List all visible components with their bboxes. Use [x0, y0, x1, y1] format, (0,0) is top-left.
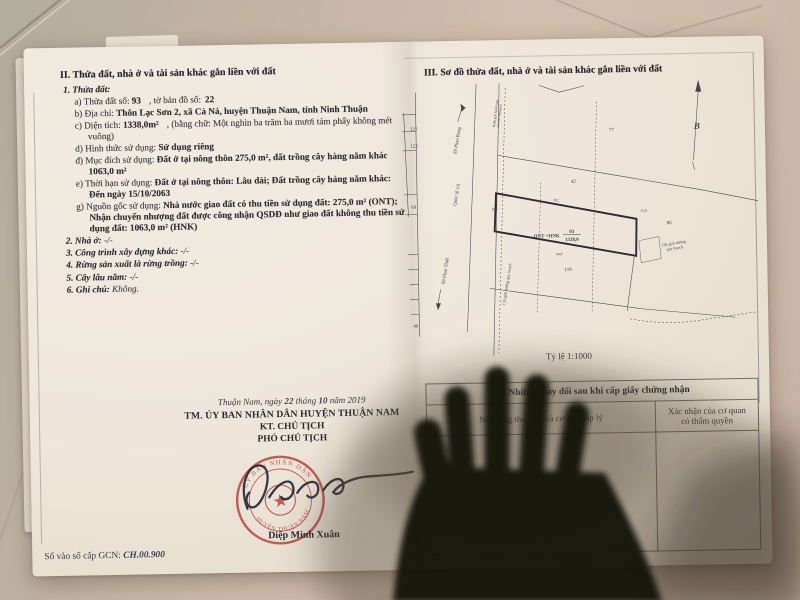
road-left-line	[463, 84, 480, 332]
date-day-handwritten: 22	[284, 396, 293, 406]
land-items: 1. Thửa đất: a) Thửa đất số: 93, tờ bản …	[60, 78, 408, 296]
road-to-phan-rang-label: Đi Phan Rang	[453, 126, 462, 154]
line-value: -/-	[180, 246, 189, 256]
left-page-border	[33, 92, 42, 544]
svg-text:119: 119	[564, 268, 572, 273]
svg-text:42: 42	[571, 180, 577, 185]
line-label: g) Nguồn gốc sử dụng:	[76, 200, 161, 211]
line-label: 6. Ghi chú:	[67, 284, 110, 295]
north-arrow-icon: B	[691, 80, 703, 170]
line-label2: , tờ bản đồ số:	[149, 94, 201, 105]
map-scale: Tỷ lệ 1:1000	[509, 350, 629, 362]
line-label: 3. Công trình xây dựng khác:	[66, 246, 178, 258]
svg-text:40: 40	[413, 325, 419, 330]
col-content-header: Nội dung thay đổi và cơ sở pháp lý	[427, 402, 656, 436]
line-value: -/-	[190, 258, 199, 268]
planning-boundary-label: Chỉ giới đường quy hoạch	[501, 263, 513, 305]
line-label: 2. Nhà ở:	[66, 236, 102, 247]
registry-label: Số vào sổ cấp GCN:	[44, 551, 121, 562]
svg-text:60: 60	[411, 206, 417, 211]
svg-text:30,2: 30,2	[553, 198, 560, 203]
line-label: b) Địa chỉ:	[75, 108, 114, 119]
corridor-label: Ranh giới hành lang an toàn đường bộ	[492, 99, 503, 128]
land-parcel-line: g) Nguồn gốc sử dụng: Nhà nước giao đất …	[62, 196, 407, 235]
svg-text:44,8: 44,8	[556, 252, 563, 257]
date-month-handwritten: 10	[318, 395, 327, 405]
line-value: 1338,0m²	[123, 119, 159, 130]
right-boundary-label: Chỉ giới đường quy hoạch	[661, 239, 687, 253]
line-label: e) Thời hạn sử dụng:	[76, 178, 153, 189]
line-value: Sử dụng riêng	[158, 141, 214, 152]
date-between: tháng	[296, 395, 317, 405]
line-label: 5. Cây lâu năm:	[66, 271, 127, 282]
date-suffix: năm 2019	[330, 395, 366, 406]
svg-text:ONT +HNK: ONT +HNK	[534, 234, 560, 239]
signature	[229, 447, 430, 528]
certificate-paper: II. Thửa đất, nhà ở và tài sản khác gắn …	[23, 36, 772, 577]
photo-of-land-certificate: II. Thửa đất, nhà ở và tài sản khác gắn …	[0, 0, 800, 600]
svg-text:25,8: 25,8	[640, 209, 647, 214]
highway-name-label: Quốc lộ 1A	[453, 183, 462, 206]
line-label: 4. Rừng sản xuất là rừng trồng:	[66, 258, 188, 270]
line-value: -/-	[129, 271, 138, 281]
line-label: a) Thửa đất số:	[74, 96, 129, 107]
registry-number-line: Số vào sổ cấp GCN: CH.00.900	[44, 550, 165, 562]
changes-table-body	[427, 431, 760, 555]
line-label: c) Diện tích:	[75, 120, 121, 131]
svg-text:121: 121	[410, 128, 418, 133]
svg-text:122: 122	[410, 145, 418, 150]
line-label: 1. Thửa đất:	[63, 84, 110, 95]
col-confirm-header: Xác nhận của cơ quan có thẩm quyền	[656, 400, 759, 432]
svg-text:1338,0: 1338,0	[565, 238, 579, 243]
svg-text:77: 77	[609, 128, 615, 133]
line-label: đ) Mục đích sử dụng:	[75, 154, 154, 165]
signature-block: Thuận Nam, ngày 22 tháng 10 năm 2019 TM.…	[142, 393, 443, 446]
line-value: Không.	[112, 283, 139, 293]
line-value: 93	[132, 95, 141, 105]
road-to-phan-thiet-label: Đi Phan Thiết	[442, 257, 451, 285]
cadastral-map: Đi Phan Rang Quốc lộ 1A Đi Phan Thiết Ra…	[401, 79, 761, 365]
line-value2: 22	[205, 94, 214, 104]
date-prefix: Thuận Nam, ngày	[218, 396, 282, 407]
parcel-numbers: 7742861191211226040	[410, 123, 674, 330]
changes-table: IV. Những thay đổi sau khi cấp giấy chứn…	[425, 378, 761, 556]
registry-value-handwritten: CH.00.900	[123, 550, 165, 561]
line-label: d) Hình thức sử dụng:	[75, 142, 156, 153]
line-value: -/-	[104, 235, 113, 245]
svg-text:86: 86	[667, 221, 673, 226]
svg-text:B: B	[693, 121, 700, 131]
target-parcel-outline	[494, 191, 637, 258]
